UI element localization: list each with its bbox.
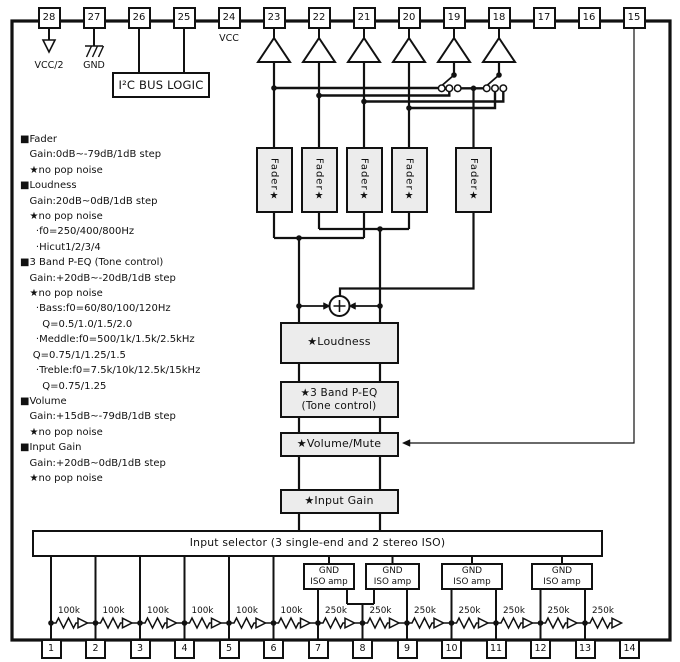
pin-bottom-9: 9	[397, 639, 418, 659]
junction-dot	[360, 620, 366, 626]
vcc-label: VCC	[211, 33, 247, 44]
pin-top-27: 27	[83, 7, 106, 29]
iso-amp-label-gnd: GND	[319, 566, 339, 577]
resistor-icon	[185, 618, 212, 628]
iso-amp-block-2: GNDISO amp	[365, 563, 420, 590]
buffer-amp-icon	[434, 618, 444, 628]
resistor-icon	[541, 618, 568, 628]
fader5-to-sum-wire	[340, 213, 474, 296]
pin-top-19: 19	[443, 7, 466, 29]
input-gain-block: ★Input Gain	[280, 489, 399, 514]
junction-dot	[538, 620, 544, 626]
spec-line: ★no pop noise	[20, 163, 200, 178]
gnd-symbol-icon	[87, 46, 104, 57]
switch-contact-icon	[446, 85, 453, 92]
pin-top-28: 28	[38, 7, 61, 29]
iso-amp-label-isoamp: ISO amp	[310, 577, 347, 588]
junction-dot	[296, 303, 302, 309]
resistor-value-label: 100k	[230, 606, 264, 616]
switch-contact-icon	[454, 85, 461, 92]
pin-bottom-4: 4	[174, 639, 195, 659]
gnd-label: GND	[70, 60, 118, 71]
pin-top-25: 25	[173, 7, 196, 29]
iso-amp-label-gnd: GND	[382, 566, 402, 577]
buffer-amp-icon	[78, 618, 88, 628]
i2c-bus-logic-block: I²C BUS LOGIC	[112, 72, 210, 98]
volume-mute-block: ★Volume/Mute	[280, 432, 399, 457]
resistor-value-label: 250k	[364, 606, 398, 616]
pin-top-18: 18	[488, 7, 511, 29]
buffer-amp-icon	[479, 618, 489, 628]
resistor-value-label: 250k	[542, 606, 576, 616]
iso-amp-block-3: GNDISO amp	[441, 563, 503, 590]
buffer-amp-icon	[345, 618, 355, 628]
spec-line: Q=0.5/1.0/1.5/2.0	[20, 317, 200, 332]
amp-triangle-icon	[303, 38, 335, 62]
i2c-bus-logic-label: I²C BUS LOGIC	[119, 79, 204, 92]
spec-line: ■Input Gain	[20, 440, 200, 455]
pin-top-17: 17	[533, 7, 556, 29]
switch-contact-icon	[492, 85, 499, 92]
fader-label: Fader★	[404, 158, 415, 203]
junction-dot	[315, 620, 321, 626]
amp-triangle-icon	[438, 38, 470, 62]
fader-label: Fader★	[359, 158, 370, 203]
peq-label-line2: (Tone control)	[302, 400, 377, 413]
pin-top-26: 26	[128, 7, 151, 29]
junction-dot	[493, 620, 499, 626]
resistor-icon	[96, 618, 123, 628]
junction-dot	[271, 85, 277, 91]
junction-dot	[93, 620, 99, 626]
buffer-amp-icon	[301, 618, 311, 628]
junction-dot	[316, 93, 322, 99]
buffer-amp-icon	[390, 618, 400, 628]
junction-dot	[377, 303, 383, 309]
buffer-amp-icon	[523, 618, 533, 628]
pin-bottom-12: 12	[530, 639, 551, 659]
junction-dot	[182, 620, 188, 626]
spec-line: Gain:+20dB~-20dB/1dB step	[20, 271, 200, 286]
spec-line: ·Treble:f0=7.5k/10k/12.5k/15kHz	[20, 363, 200, 378]
spec-line: ·Meddle:f0=500/1k/1.5k/2.5kHz	[20, 332, 200, 347]
pin-top-21: 21	[353, 7, 376, 29]
spec-line: Q=0.75/1.25	[20, 379, 200, 394]
spec-line: ·Bass:f0=60/80/100/120Hz	[20, 301, 200, 316]
resistor-value-label: 100k	[141, 606, 175, 616]
switch-contact-icon	[438, 85, 445, 92]
junction-dot	[404, 620, 410, 626]
iso-amp-label-isoamp: ISO amp	[453, 577, 490, 588]
loudness-block: ★Loudness	[280, 322, 399, 364]
fader-label: Fader★	[468, 158, 479, 203]
resistor-value-label: 250k	[586, 606, 620, 616]
spec-line: ·f0=250/400/800Hz	[20, 224, 200, 239]
resistor-value-label: 250k	[319, 606, 353, 616]
spec-line: Gain:20dB~0dB/1dB step	[20, 194, 200, 209]
pin-top-23: 23	[263, 7, 286, 29]
pin-top-20: 20	[398, 7, 421, 29]
junction-dot	[451, 72, 457, 78]
pin-bottom-7: 7	[308, 639, 329, 659]
pin-bottom-6: 6	[263, 639, 284, 659]
resistor-value-label: 250k	[408, 606, 442, 616]
junction-dot	[449, 620, 455, 626]
spec-line: ★no pop noise	[20, 471, 200, 486]
spec-line: Gain:0dB~-79dB/1dB step	[20, 147, 200, 162]
arrowhead-icon	[403, 440, 411, 447]
resistor-icon	[274, 618, 301, 628]
buffer-amp-icon	[212, 618, 222, 628]
spec-line: ■Fader	[20, 132, 200, 147]
junction-dot	[226, 620, 232, 626]
junction-dot	[406, 105, 412, 111]
pin-top-24: 24	[218, 7, 241, 29]
buffer-amp-icon	[568, 618, 578, 628]
resistor-icon	[585, 618, 612, 628]
resistor-value-label: 100k	[97, 606, 131, 616]
resistor-icon	[496, 618, 523, 628]
vcc-half-label: VCC/2	[25, 60, 73, 71]
switch-contact-icon	[500, 85, 507, 92]
amp-triangle-icon	[483, 38, 515, 62]
buffer-amp-icon	[123, 618, 133, 628]
resistor-value-label: 100k	[52, 606, 86, 616]
iso-amp-label-isoamp: ISO amp	[543, 577, 580, 588]
spec-line: ★no pop noise	[20, 209, 200, 224]
pin-top-16: 16	[578, 7, 601, 29]
spec-line: Gain:+20dB~0dB/1dB step	[20, 456, 200, 471]
iso-amp-block-4: GNDISO amp	[531, 563, 593, 590]
fader-block-1: Fader★	[256, 147, 293, 213]
pin-bottom-8: 8	[352, 639, 373, 659]
input-selector-label: Input selector (3 single-end and 2 stere…	[190, 537, 445, 550]
resistor-icon	[318, 618, 345, 628]
amp-triangle-icon	[393, 38, 425, 62]
fader-label: Fader★	[314, 158, 325, 203]
fader-block-3: Fader★	[346, 147, 383, 213]
spec-line: ■Volume	[20, 394, 200, 409]
spec-line: ★no pop noise	[20, 286, 200, 301]
spec-line: Q=0.75/1/1.25/1.5	[20, 348, 200, 363]
pin-bottom-1: 1	[41, 639, 62, 659]
switch-contact-icon	[483, 85, 490, 92]
pin-top-15: 15	[623, 7, 646, 29]
junction-dot	[271, 620, 277, 626]
peq-label-line1: ★3 Band P-EQ	[301, 387, 378, 400]
buffer-amp-icon	[167, 618, 177, 628]
junction-dot	[496, 72, 502, 78]
resistor-icon	[407, 618, 434, 628]
loudness-label: ★Loudness	[307, 336, 370, 349]
volume-mute-label: ★Volume/Mute	[297, 438, 381, 451]
audio-processor-block-diagram: VCC/2 GND VCC I²C BUS LOGIC ★Loudness ★3…	[0, 0, 680, 662]
junction-dot	[48, 620, 54, 626]
fader-label: Fader★	[269, 158, 280, 203]
fader-block-5: Fader★	[455, 147, 492, 213]
buffer-amp-icon	[612, 618, 622, 628]
resistor-icon	[229, 618, 256, 628]
resistor-icon	[452, 618, 479, 628]
resistor-value-label: 100k	[275, 606, 309, 616]
pin-bottom-14: 14	[619, 639, 640, 659]
resistor-icon	[363, 618, 390, 628]
spec-text-block: ■Fader Gain:0dB~-79dB/1dB step ★no pop n…	[20, 132, 200, 486]
resistor-value-label: 100k	[186, 606, 220, 616]
resistor-value-label: 250k	[453, 606, 487, 616]
pin-bottom-13: 13	[575, 639, 596, 659]
pin-bottom-2: 2	[85, 639, 106, 659]
fader-block-4: Fader★	[391, 147, 428, 213]
junction-dot	[582, 620, 588, 626]
iso-amp-label-isoamp: ISO amp	[374, 577, 411, 588]
junction-dot	[361, 99, 367, 105]
resistor-value-label: 250k	[497, 606, 531, 616]
pin-bottom-5: 5	[219, 639, 240, 659]
peq-block: ★3 Band P-EQ (Tone control)	[280, 381, 399, 418]
spec-line: ·Hicut1/2/3/4	[20, 240, 200, 255]
bus-wire	[319, 92, 449, 96]
spec-line: Gain:+15dB~-79dB/1dB step	[20, 409, 200, 424]
input-gain-label: ★Input Gain	[304, 495, 373, 508]
input-selector-block: Input selector (3 single-end and 2 stere…	[32, 530, 603, 557]
pin-bottom-11: 11	[486, 639, 507, 659]
iso-amp-block-1: GNDISO amp	[303, 563, 355, 590]
junction-dot	[137, 620, 143, 626]
spec-line: ★no pop noise	[20, 425, 200, 440]
pin-bottom-3: 3	[130, 639, 151, 659]
iso-amp-label-gnd: GND	[552, 566, 572, 577]
bus-wire	[409, 92, 495, 108]
amp-triangle-icon	[348, 38, 380, 62]
amp-triangle-icon	[258, 38, 290, 62]
pin-top-22: 22	[308, 7, 331, 29]
vcc-half-arrow-icon	[43, 40, 55, 52]
iso-amp-label-gnd: GND	[462, 566, 482, 577]
spec-line: ■3 Band P-EQ (Tone control)	[20, 255, 200, 270]
pin-bottom-10: 10	[441, 639, 462, 659]
fader-block-2: Fader★	[301, 147, 338, 213]
spec-line: ■Loudness	[20, 178, 200, 193]
resistor-icon	[140, 618, 167, 628]
buffer-amp-icon	[256, 618, 266, 628]
junction-dot	[471, 86, 477, 92]
resistor-icon	[51, 618, 78, 628]
